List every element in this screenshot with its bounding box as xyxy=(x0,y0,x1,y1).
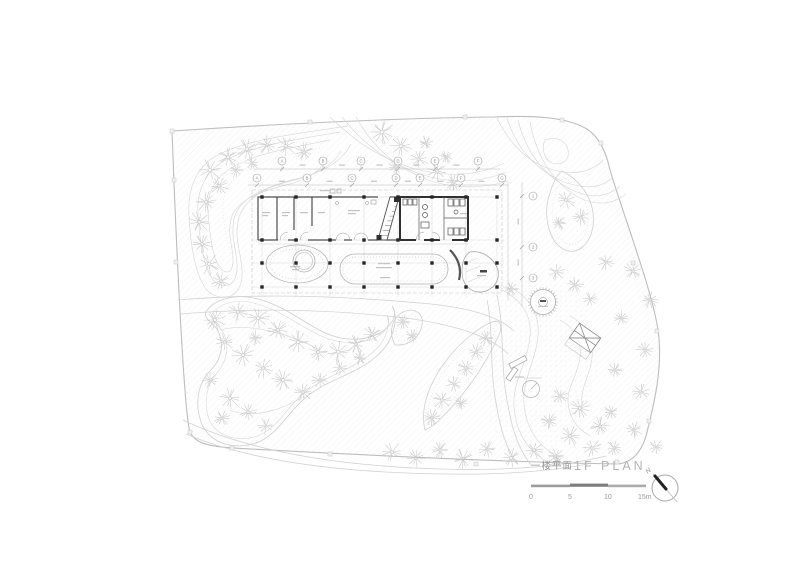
micro-label-mark xyxy=(282,212,290,213)
grid-bubble-label: B xyxy=(306,176,309,181)
survey-marker xyxy=(599,141,603,145)
column xyxy=(294,261,297,264)
tree-icon xyxy=(649,440,662,454)
column xyxy=(495,195,498,198)
dim-figure-mark xyxy=(405,181,411,182)
micro-label-mark xyxy=(282,215,288,216)
micro-label-mark xyxy=(262,212,270,213)
survey-marker xyxy=(172,178,176,182)
drawing-primitive xyxy=(654,440,655,445)
grid-bubble-label: A xyxy=(256,176,259,181)
dim-figure-mark xyxy=(518,219,519,225)
survey-marker xyxy=(655,329,659,333)
grid-bubble-label: C xyxy=(350,176,353,181)
column xyxy=(328,238,331,241)
micro-label-mark xyxy=(348,210,360,211)
column xyxy=(260,238,263,241)
micro-label-mark xyxy=(300,212,308,213)
grid-bubble-label: D xyxy=(394,176,397,181)
drawing-primitive xyxy=(655,446,657,448)
micro-label-mark xyxy=(380,277,390,278)
scale-bar: 0 5 10 15m xyxy=(529,484,652,501)
survey-marker xyxy=(474,462,478,466)
dim-figure-mark xyxy=(300,164,306,165)
grid-bubble-label: G xyxy=(500,176,503,181)
column xyxy=(294,238,297,241)
column xyxy=(362,261,365,264)
column xyxy=(495,285,498,288)
column xyxy=(430,261,433,264)
drawing-primitive xyxy=(407,458,415,459)
drawing-primitive xyxy=(652,448,656,453)
micro-label-mark xyxy=(318,212,325,213)
scale-label-15m: 15m xyxy=(638,494,652,501)
column xyxy=(464,195,467,198)
micro-label-mark xyxy=(376,267,392,268)
grid-bubble-label: E xyxy=(434,159,437,164)
grid-bubble-label: A xyxy=(281,159,284,164)
column xyxy=(464,238,467,241)
grid-bubble-label: E xyxy=(419,176,422,181)
scale-seg-1 xyxy=(531,485,570,488)
scale-seg-2 xyxy=(570,484,608,487)
grid-bubble-label: F xyxy=(477,159,480,164)
dim-figure-mark xyxy=(438,181,444,182)
site-fill xyxy=(172,116,660,464)
dim-figure-mark xyxy=(327,181,333,182)
north-label: N xyxy=(645,467,653,476)
dim-figure-mark xyxy=(339,164,345,165)
column xyxy=(362,195,365,198)
dim-figure-mark xyxy=(479,181,485,182)
plaza-label-mark xyxy=(540,300,546,302)
floor-plan-drawing: ABCDEFABCDEFG123 xyxy=(0,0,800,565)
drawing-primitive xyxy=(417,459,421,463)
drawing-sheet: ABCDEFABCDEFG123 xyxy=(0,0,800,565)
micro-label-mark xyxy=(452,206,458,207)
dim-figure-mark xyxy=(518,260,519,266)
title-block: 一楼平面 1F PLAN 0 5 10 15m N xyxy=(529,459,678,502)
survey-marker xyxy=(560,118,564,122)
column xyxy=(396,285,399,288)
survey-marker xyxy=(647,419,651,423)
survey-marker xyxy=(188,430,192,434)
dim-figure-mark xyxy=(371,181,377,182)
survey-marker xyxy=(174,260,178,264)
dim-figure-mark xyxy=(414,164,420,165)
dim-figure-mark xyxy=(377,164,383,165)
column xyxy=(495,261,498,264)
survey-marker xyxy=(230,446,234,450)
survey-marker xyxy=(328,452,332,456)
scale-label-5: 5 xyxy=(568,494,572,501)
column xyxy=(362,238,365,241)
scale-seg-3 xyxy=(608,485,646,488)
micro-label-mark xyxy=(460,213,467,214)
micro-label-mark xyxy=(348,213,356,214)
north-needle-icon xyxy=(655,476,666,489)
column xyxy=(495,238,498,241)
grid-bubble-label: D xyxy=(396,159,399,164)
survey-marker xyxy=(463,115,467,119)
column xyxy=(328,285,331,288)
column xyxy=(464,285,467,288)
column xyxy=(328,195,331,198)
column xyxy=(362,285,365,288)
column xyxy=(430,238,433,241)
dim-figure-mark xyxy=(279,181,285,182)
survey-marker xyxy=(170,129,174,133)
column xyxy=(294,285,297,288)
micro-label-mark xyxy=(320,190,330,191)
column xyxy=(430,195,433,198)
column xyxy=(396,195,399,198)
survey-marker xyxy=(308,120,312,124)
column xyxy=(260,285,263,288)
column xyxy=(328,261,331,264)
drawing-primitive xyxy=(657,448,660,451)
column xyxy=(294,195,297,198)
site-area xyxy=(172,116,660,464)
drawing-primitive xyxy=(649,447,654,449)
column xyxy=(260,261,263,264)
drawing-primitive xyxy=(651,299,658,300)
plan-title-en: 1F PLAN xyxy=(574,459,646,473)
survey-marker xyxy=(631,261,635,265)
scale-label-10: 10 xyxy=(604,494,612,501)
scale-label-0: 0 xyxy=(529,494,533,501)
column xyxy=(430,285,433,288)
plan-title-cn: 一楼平面 xyxy=(531,460,573,472)
column xyxy=(260,195,263,198)
column xyxy=(396,238,399,241)
grid-bubble-label: B xyxy=(322,159,325,164)
column xyxy=(396,261,399,264)
column xyxy=(464,261,467,264)
micro-label-mark xyxy=(262,215,268,216)
drawing-primitive xyxy=(651,296,656,299)
dim-figure-mark xyxy=(454,164,460,165)
grid-bubble-label: F xyxy=(460,176,463,181)
drawing-primitive xyxy=(459,460,463,468)
drawing-primitive xyxy=(416,459,417,467)
drawing-primitive xyxy=(414,459,416,464)
micro-label-mark xyxy=(378,263,390,264)
grid-bubble-label: C xyxy=(359,159,362,164)
drawing-primitive xyxy=(657,447,662,448)
